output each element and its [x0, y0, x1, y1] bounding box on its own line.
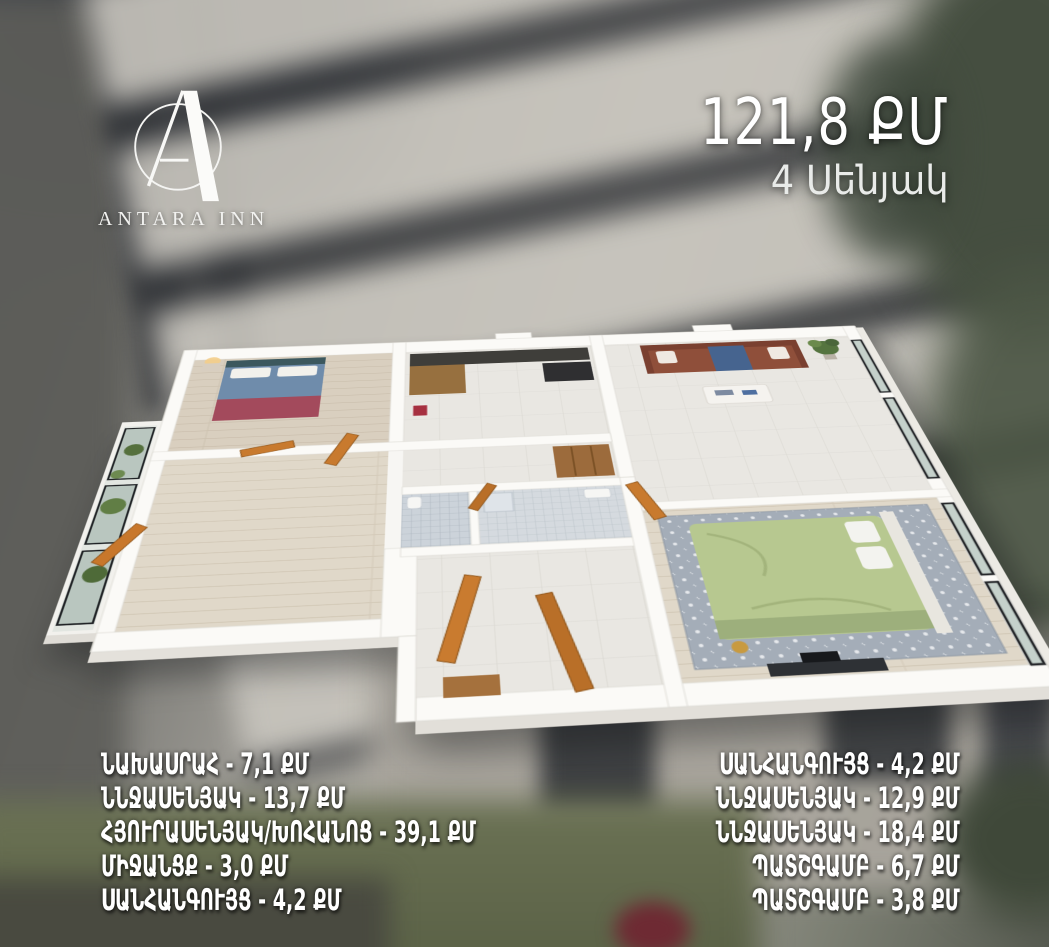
pillow — [277, 366, 318, 377]
room-stats-left: ՆԱԽԱՍՐԱՀ - 7,1 ՔՄ ՆՆՋԱՍԵՆՅԱԿ - 13,7 ՔՄ Հ… — [101, 747, 476, 917]
coffee-table — [702, 384, 774, 404]
area-summary: 121,8 ՔՄ 4 Սենյակ — [638, 90, 949, 206]
stat-line: ՄԻՋԱՆՑՔ - 3,0 ՔՄ — [101, 849, 476, 883]
stat-line: ՆՆՋԱՍԵՆՅԱԿ - 13,7 ՔՄ — [101, 781, 476, 815]
floor-plan-svg — [0, 316, 1049, 783]
kitchen-cabinets — [409, 364, 466, 395]
table-books — [714, 390, 734, 396]
brand-monogram-icon — [122, 86, 234, 204]
stat-line: ՊԱՏՇԳԱՄԲ - 3,8 ՔՄ — [716, 883, 960, 917]
stat-line: ՍԱՆՀԱՆԳՈՒՅՑ - 4,2 ՔՄ — [716, 747, 960, 781]
sofa-pillow — [655, 351, 678, 364]
laptop — [799, 651, 841, 663]
stat-line: ՆՆՋԱՍԵՆՅԱԿ - 18,4 ՔՄ — [716, 815, 960, 849]
nightstand — [201, 363, 221, 371]
wardrobe — [553, 444, 616, 478]
sink — [583, 488, 611, 498]
stat-line: ՆԱԽԱՍՐԱՀ - 7,1 ՔՄ — [101, 747, 476, 781]
flyer: ANTARA INN 121,8 ՔՄ 4 Սենյակ ՆԱԽԱՍՐԱՀ - … — [0, 0, 1049, 947]
pillow — [230, 367, 272, 378]
brand-name: ANTARA INN — [98, 208, 258, 231]
wall-art-red — [413, 405, 428, 416]
stat-line: ՍԱՆՀԱՆԳՈՒՅՑ - 4,2 ՔՄ — [101, 883, 476, 917]
kitchen-appliance — [542, 361, 594, 381]
table-books — [742, 390, 758, 395]
toilet — [407, 496, 422, 508]
stat-line: ՀՅՈՒՐԱՍԵՆՅԱԿ/ԽՈՀԱՆՈՑ - 39,1 ՔՄ — [101, 815, 476, 849]
room-stats-right: ՍԱՆՀԱՆԳՈՒՅՑ - 4,2 ՔՄ ՆՆՋԱՍԵՆՅԱԿ - 12,9 Ք… — [716, 747, 960, 917]
balcony-table — [443, 674, 501, 698]
brand-logo: ANTARA INN — [98, 86, 258, 231]
bed-red-throw — [212, 396, 321, 421]
floor-plan-3d — [0, 316, 1049, 784]
stat-line: ՊԱՏՇԳԱՄԲ - 6,7 ՔՄ — [716, 849, 960, 883]
rooms-count: 4 Սենյակ — [663, 156, 949, 206]
total-area: 121,8 ՔՄ — [700, 90, 949, 156]
stat-line: ՆՆՋԱՍԵՆՅԱԿ - 12,9 ՔՄ — [716, 781, 960, 815]
